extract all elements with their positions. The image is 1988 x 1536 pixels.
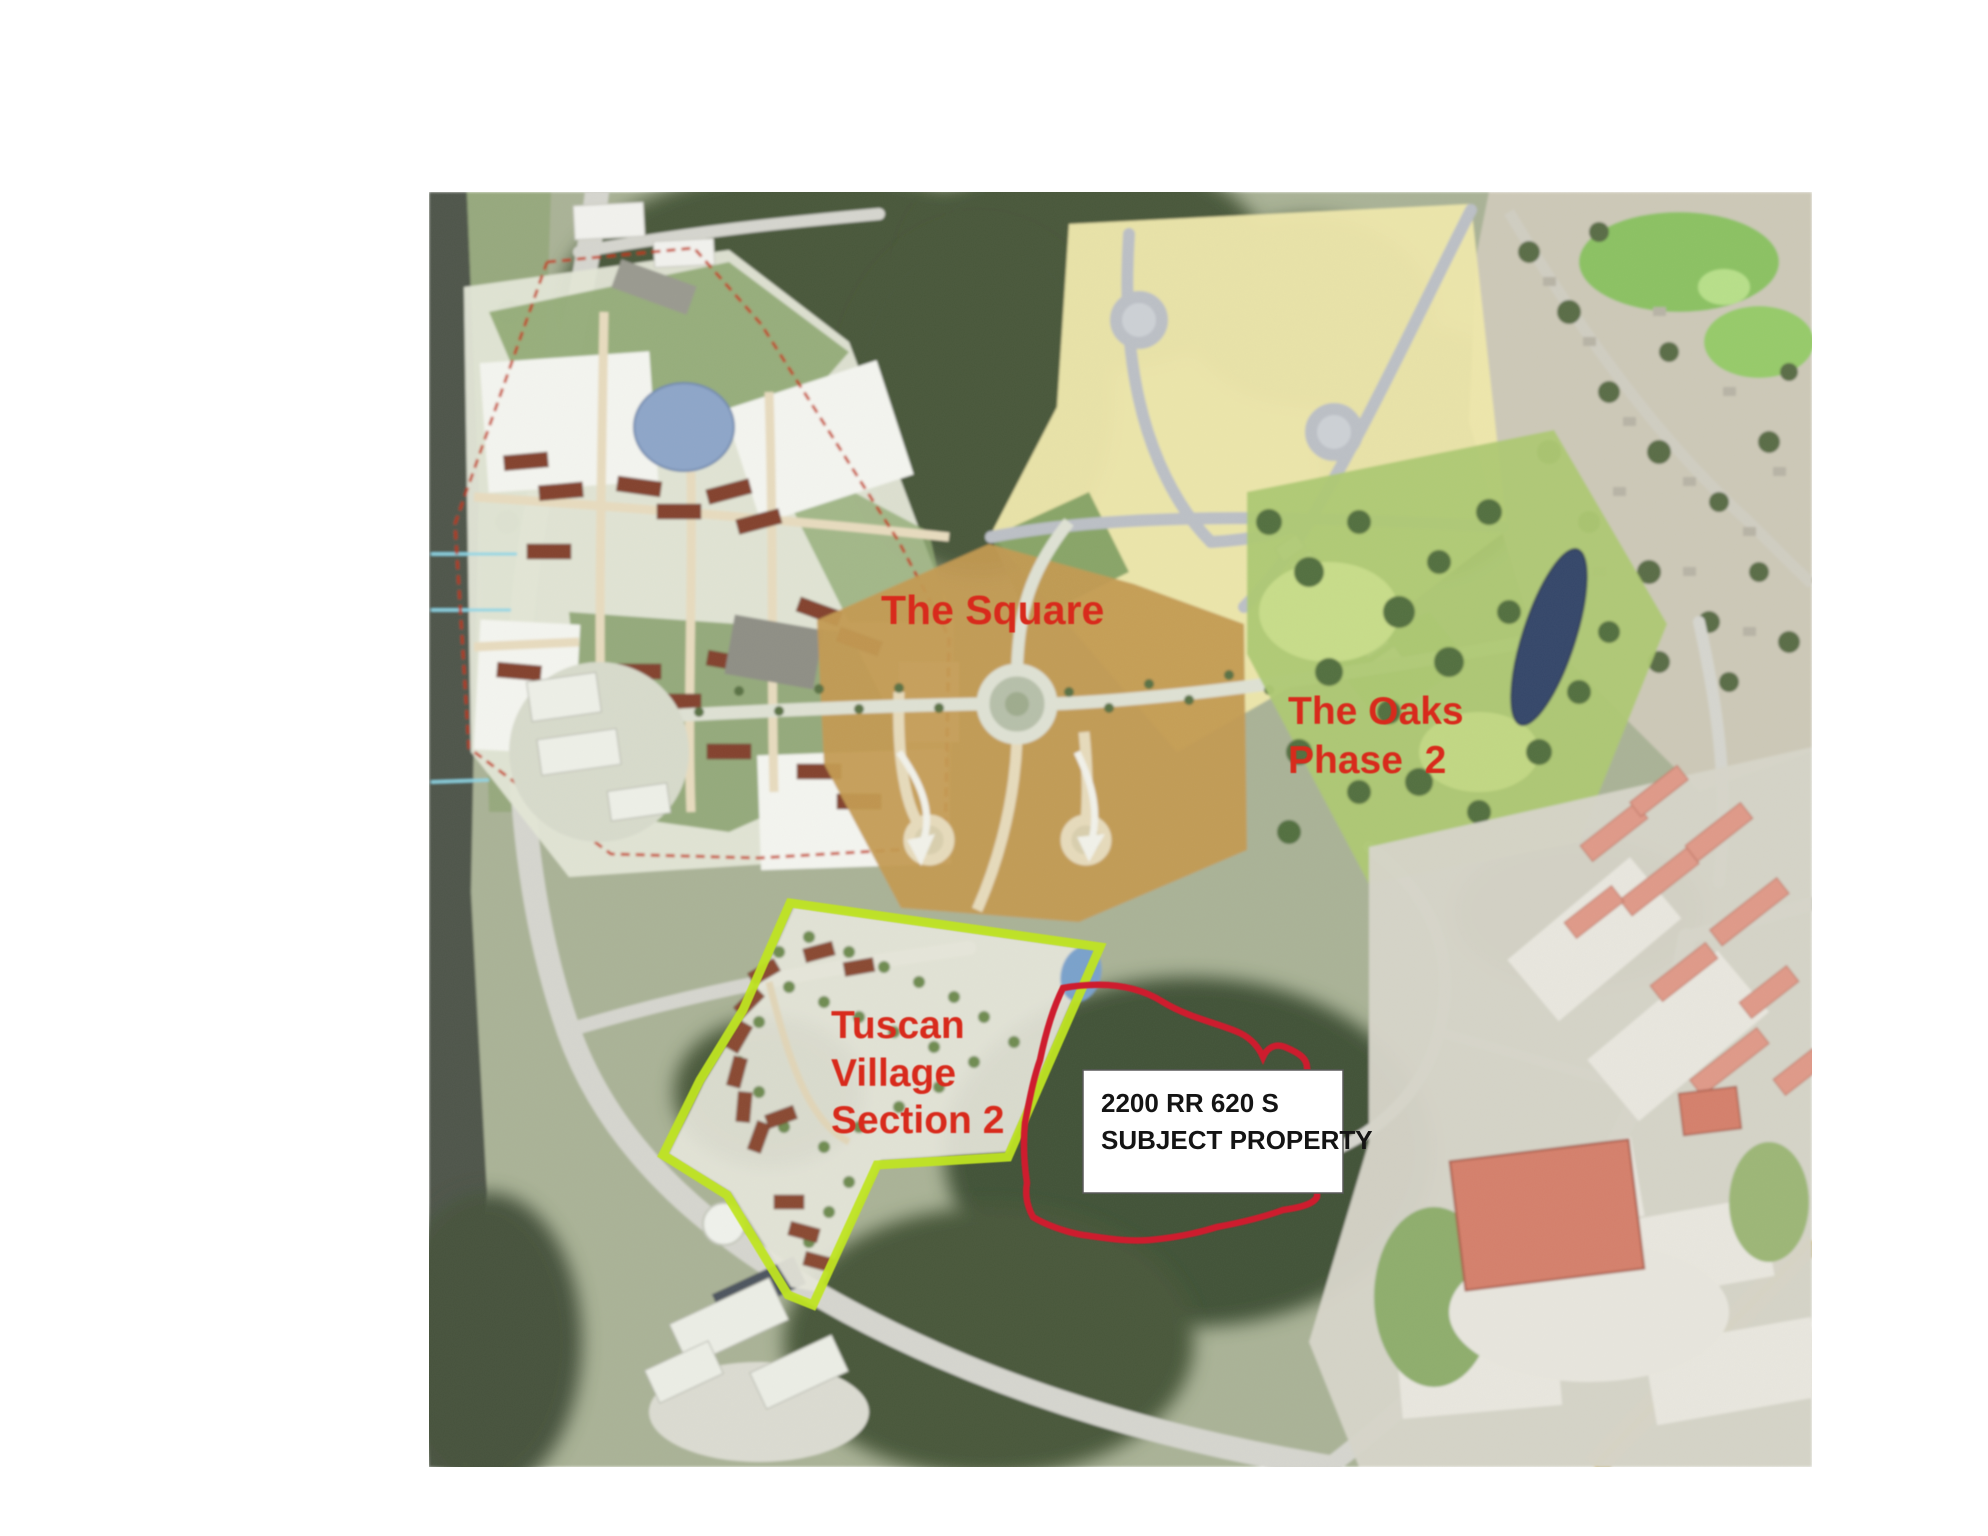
svg-text:The Oaks: The Oaks — [1288, 690, 1464, 733]
svg-text:Section 2: Section 2 — [831, 1099, 1004, 1142]
svg-text:Village: Village — [831, 1052, 956, 1095]
svg-text:Tuscan: Tuscan — [831, 1004, 965, 1047]
callout-box: 2200 RR 620 S SUBJECT PROPERTY — [1083, 1070, 1373, 1193]
aerial-map-image: The Square The Oaks Phase 2 Tuscan Villa… — [429, 192, 1812, 1467]
callout-subject-property: SUBJECT PROPERTY — [1101, 1125, 1373, 1155]
photo-noise — [429, 192, 1812, 1467]
the-square-label: The Square — [881, 587, 1104, 633]
callout-address: 2200 RR 620 S — [1101, 1088, 1279, 1118]
property-map-page: The Square The Oaks Phase 2 Tuscan Villa… — [0, 0, 1988, 1536]
svg-text:Phase 2: Phase 2 — [1288, 739, 1446, 782]
